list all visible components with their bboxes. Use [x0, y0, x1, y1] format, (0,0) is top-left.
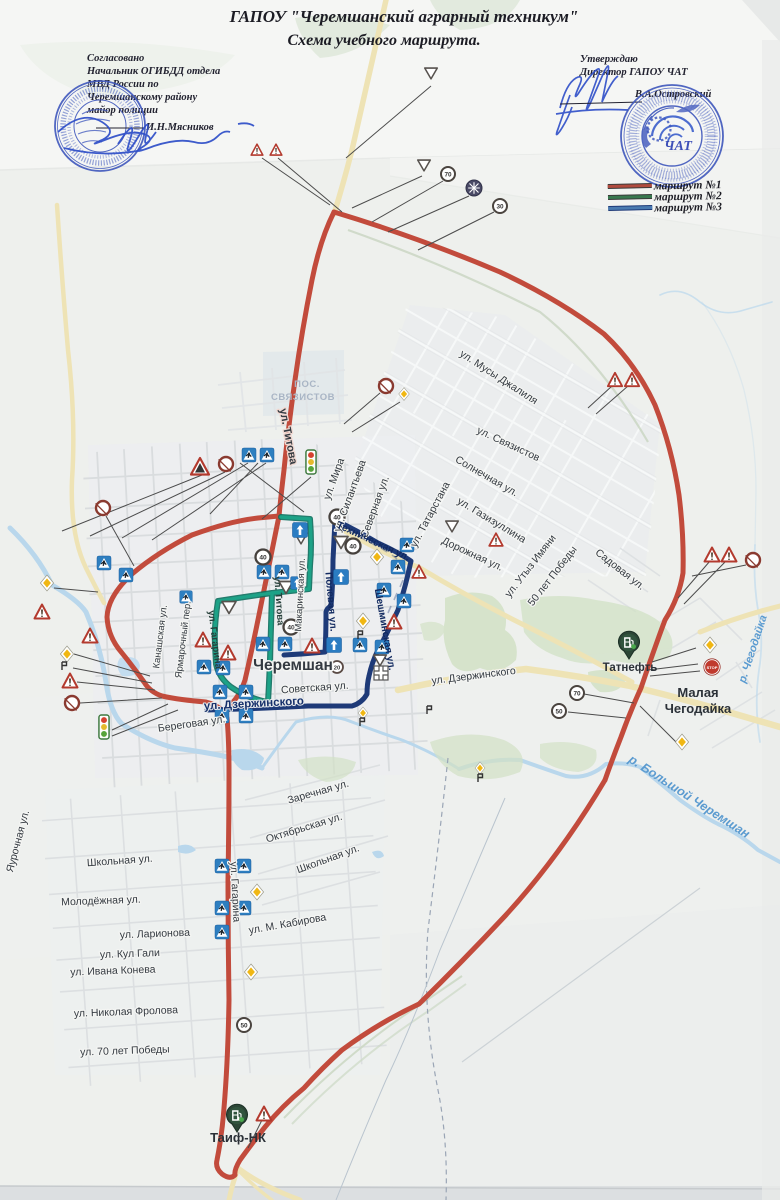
- svg-text:ГАПОУ "Черемшанский аграрный т: ГАПОУ "Черемшанский аграрный техникум": [229, 7, 579, 26]
- svg-text:СВЯЗИСТОВ: СВЯЗИСТОВ: [271, 392, 335, 403]
- svg-text:маршрут №3: маршрут №3: [653, 201, 722, 214]
- svg-text:70: 70: [573, 691, 581, 698]
- svg-text:40: 40: [349, 544, 357, 551]
- svg-text:70: 70: [444, 172, 452, 179]
- svg-text:Утверждаю: Утверждаю: [580, 54, 638, 65]
- svg-text:Начальник ОГИБДД отдела: Начальник ОГИБДД отдела: [86, 66, 220, 77]
- svg-text:50: 50: [240, 1023, 248, 1030]
- svg-text:ЧАТ: ЧАТ: [664, 139, 693, 154]
- svg-text:И.Н.Мясников: И.Н.Мясников: [145, 122, 214, 133]
- svg-text:40: 40: [259, 555, 267, 562]
- svg-text:Схема учебного маршрута.: Схема учебного маршрута.: [287, 32, 480, 49]
- svg-text:ул. Ларионова: ул. Ларионова: [120, 927, 191, 941]
- svg-text:Черемшан: Черемшан: [253, 657, 333, 674]
- svg-text:30: 30: [496, 204, 504, 211]
- svg-text:майор полиции: майор полиции: [86, 105, 158, 116]
- svg-text:В.А.Островский: В.А.Островский: [634, 89, 712, 100]
- svg-text:ПОС.: ПОС.: [294, 379, 320, 390]
- svg-text:Директор ГАПОУ ЧАТ: Директор ГАПОУ ЧАТ: [579, 67, 688, 78]
- svg-text:Чегодайка: Чегодайка: [665, 701, 732, 716]
- svg-text:Малая: Малая: [677, 685, 718, 700]
- svg-text:Таиф-НК: Таиф-НК: [210, 1130, 266, 1145]
- svg-text:Согласовано: Согласовано: [87, 53, 144, 64]
- svg-text:20: 20: [334, 665, 340, 671]
- svg-text:ул. Кул Гали: ул. Кул Гали: [100, 947, 161, 961]
- svg-text:Татнефть: Татнефть: [603, 662, 658, 674]
- svg-text:50: 50: [555, 709, 563, 716]
